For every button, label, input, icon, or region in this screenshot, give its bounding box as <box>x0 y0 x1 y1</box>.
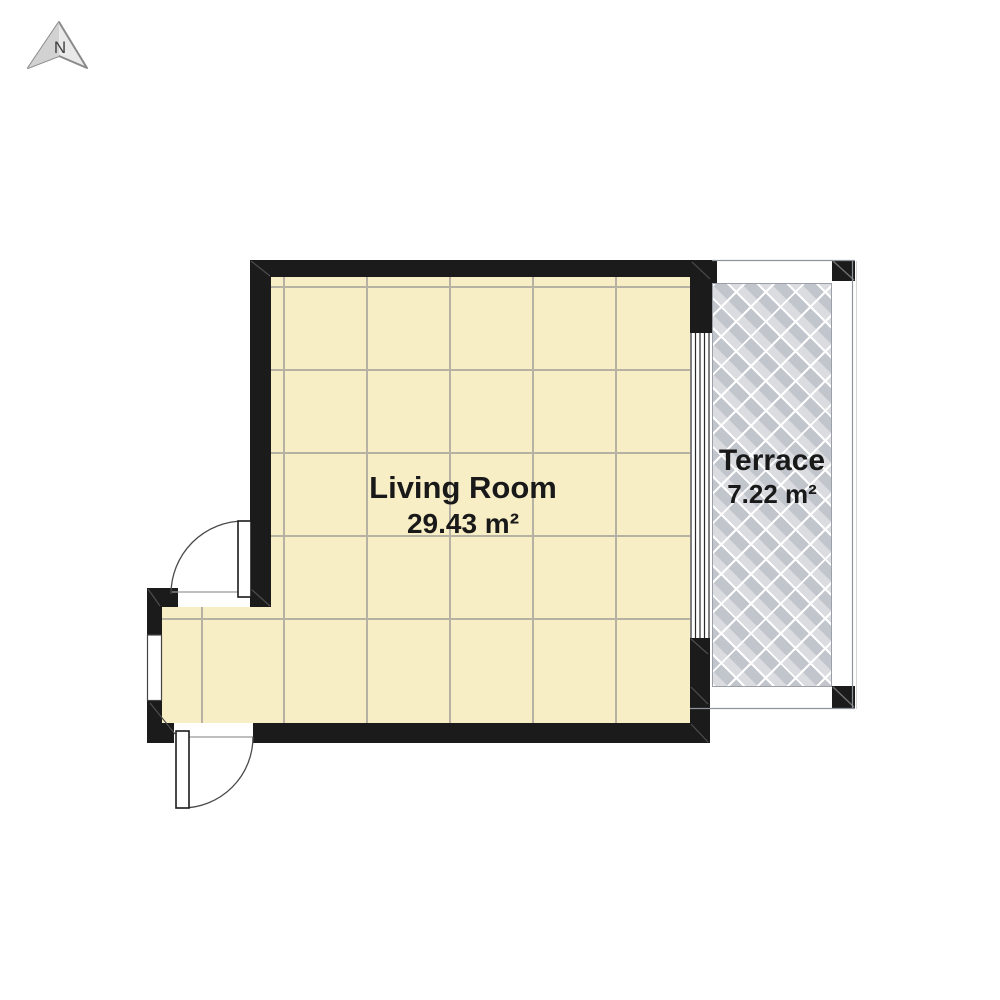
side-window[interactable] <box>148 635 162 701</box>
entry-door-left[interactable] <box>171 521 251 597</box>
entry-door-bottom[interactable] <box>176 731 253 808</box>
terrace-area: 7.22 m² <box>697 480 847 509</box>
terrace-label: Terrace <box>697 444 847 477</box>
wall-segment-bottom <box>253 723 710 743</box>
north-arrow-icon: N <box>28 22 87 68</box>
living-room-label: Living Room <box>313 471 613 505</box>
wall-segment-left <box>250 260 271 607</box>
floor-plan: N Living Room 29.43 m² Terrace 7.22 m² <box>0 0 1000 1000</box>
wall-segment-top <box>250 260 716 277</box>
terrace-pillar-top-left <box>695 260 717 283</box>
door-leaf[interactable] <box>176 731 189 808</box>
wall-segment-nook-left-up <box>147 588 162 635</box>
wall-segment-nook-bottom <box>147 723 174 743</box>
door-leaf[interactable] <box>238 521 251 597</box>
living-room-area: 29.43 m² <box>313 508 613 539</box>
north-arrow-label: N <box>54 38 66 57</box>
